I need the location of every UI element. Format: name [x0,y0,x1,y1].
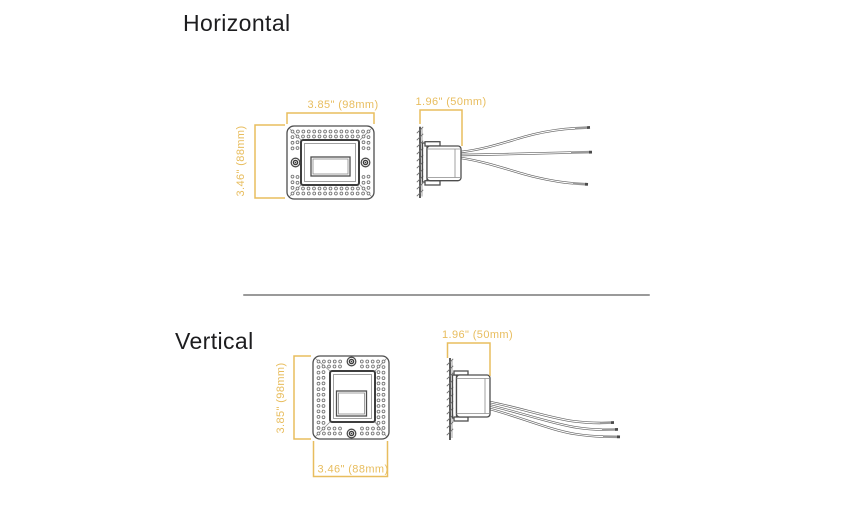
flange-hole [317,360,320,363]
flange-hole [328,365,331,368]
flange-hole [345,192,348,195]
flange-hole [324,130,327,133]
vf-plate [313,356,389,439]
flange-hole [324,135,327,138]
flange-hole [371,432,374,435]
vs-depth-dimension: 1.96" (50mm) [442,329,513,376]
hs-fixture-body [417,127,461,198]
flange-hole [367,175,370,178]
flange-hole [324,192,327,195]
flange-hole [302,135,305,138]
flange-hole [324,187,327,190]
flange-hole [323,432,326,435]
vf-height-label: 3.85" (98mm) [275,362,287,433]
horizontal-front-view: 3.85" (98mm) 3.46" (88mm) [235,92,400,210]
vf-width-dimension: 3.46" (88mm) [314,441,389,477]
flange-hole [335,135,338,138]
hs-depth-label: 1.96" (50mm) [415,96,486,108]
flange-hole [307,187,310,190]
flange-hole [322,421,325,424]
flange-hole [377,421,380,424]
flange-hole [328,360,331,363]
vertical-front-view: 3.85" (98mm) 3.46" (88mm) [250,345,400,480]
flange-hole [296,141,299,144]
flange-hole [328,427,331,430]
flange-hole [361,427,364,430]
flange-hole [317,410,320,413]
flange-hole [356,130,359,133]
flange-hole [340,187,343,190]
flange-hole [317,421,320,424]
flange-hole [377,405,380,408]
flange-hole [377,432,380,435]
flange-hole [351,135,354,138]
flange-hole [296,187,299,190]
flange-hole [339,365,342,368]
flange-hole [291,141,294,144]
flange-hole [302,192,305,195]
hs-depth-dimension: 1.96" (50mm) [415,96,486,146]
flange-hole [296,135,299,138]
flange-hole [345,130,348,133]
flange-hole [322,427,325,430]
screw-dot [365,162,367,164]
flange-hole [313,130,316,133]
flange-hole [367,136,370,139]
flange-hole [333,432,336,435]
flange-hole [351,192,354,195]
flange-hole [377,360,380,363]
flange-hole [313,135,316,138]
wire-stripped-end [575,128,587,129]
flange-hole [322,410,325,413]
flange-hole [335,192,338,195]
flange-hole [322,376,325,379]
vs-wires [490,402,620,437]
flange-hole [323,360,326,363]
flange-hole [382,427,385,430]
flange-hole [346,187,349,190]
flange-hole [339,427,342,430]
flange-hole [317,388,320,391]
flange-hole [377,410,380,413]
flange-hole [291,175,294,178]
flange-hole [382,404,385,407]
flange-hole [377,376,380,379]
hs-wires [461,127,592,184]
flange-hole [329,135,332,138]
flange-hole [335,130,338,133]
horizontal-section-title: Horizontal [183,10,291,37]
flange-hole [340,135,343,138]
hf-height-dimension: 3.46" (88mm) [235,125,285,198]
flange-hole [377,371,380,374]
flange-hole [317,432,320,435]
flange-hole [382,377,385,380]
flange-hole [382,360,385,363]
flange-hole [322,388,325,391]
flange-hole [291,192,294,195]
flange-hole [313,192,316,195]
vf-width-label: 3.46" (88mm) [317,464,388,476]
flange-hole [382,366,385,369]
flange-hole [340,192,343,195]
flange-hole [367,186,370,189]
flange-hole [377,427,380,430]
flange-hole [333,360,336,363]
flange-hole [382,399,385,402]
hf-height-label: 3.46" (88mm) [235,125,247,196]
flange-hole [302,187,305,190]
flange-hole [362,147,365,150]
flange-hole [313,187,316,190]
flange-hole [329,130,332,133]
screw-dot [351,433,353,435]
vs-depth-label: 1.96" (50mm) [442,329,513,341]
flange-hole [367,141,370,144]
flange-hole [351,187,354,190]
flange-hole [377,388,380,391]
flange-hole [317,366,320,369]
flange-hole [322,382,325,385]
flange-hole [296,176,299,179]
flange-hole [362,141,365,144]
vertical-section-title: Vertical [175,328,254,355]
horizontal-side-view: 1.96" (50mm) [403,88,650,210]
flange-hole [356,192,359,195]
flange-hole [362,187,365,190]
flange-hole [322,405,325,408]
flange-hole [362,181,365,184]
flange-hole [291,147,294,150]
flange-hole [377,416,380,419]
flange-hole [297,130,300,133]
flange-hole [351,130,354,133]
vf-height-dimension: 3.85" (98mm) [275,356,311,439]
section-divider [243,294,650,296]
flange-hole [297,192,300,195]
flange-hole [317,415,320,418]
wire [461,128,575,152]
vs-fixture-body [447,358,490,440]
flange-hole [372,427,375,430]
flange-hole [318,187,321,190]
flange-hole [362,192,365,195]
flange-hole [333,427,336,430]
flange-hole [328,432,331,435]
flange-hole [362,135,365,138]
dimension-line [255,125,285,198]
flange-hole [339,432,342,435]
flange-hole [382,382,385,385]
flange-hole [307,192,310,195]
flange-hole [357,135,360,138]
flange-hole [371,360,374,363]
flange-hole [317,382,320,385]
flange-hole [322,393,325,396]
dimension-line [287,113,374,124]
flange-hole [360,360,363,363]
flange-hole [382,432,385,435]
flange-hole [366,432,369,435]
flange-hole [322,365,325,368]
flange-hole [377,365,380,368]
hf-width-dimension: 3.85" (98mm) [287,99,379,124]
flange-hole [322,416,325,419]
hf-plate [287,126,374,199]
flange-hole [307,135,310,138]
flange-hole [366,360,369,363]
flange-hole [296,181,299,184]
flange-hole [377,382,380,385]
flange-hole [377,399,380,402]
flange-hole [361,365,364,368]
screw-dot [295,162,297,164]
flange-hole [317,399,320,402]
flange-hole [366,365,369,368]
flange-hole [367,130,370,133]
flange-hole [318,135,321,138]
flange-hole [291,130,294,133]
flange-hole [366,427,369,430]
flange-hole [367,181,370,184]
flange-hole [307,130,310,133]
flange-hole [382,388,385,391]
flange-hole [340,130,343,133]
flange-hole [339,360,342,363]
flange-hole [382,410,385,413]
step-light-spec-sheet: Horizontal Vertical [0,0,845,511]
dimension-line [294,356,311,439]
flange-hole [329,187,332,190]
flange-hole [335,187,338,190]
flange-hole [360,432,363,435]
flange-hole [367,192,370,195]
flange-hole [372,365,375,368]
flange-hole [382,421,385,424]
flange-hole [329,192,332,195]
vertical-side-view: 1.96" (50mm) [435,322,650,447]
flange-hole [291,186,294,189]
flange-hole [362,176,365,179]
flange-hole [317,427,320,430]
flange-hole [291,181,294,184]
flange-hole [317,404,320,407]
flange-hole [296,147,299,150]
screw-dot [351,361,353,363]
hf-width-label: 3.85" (98mm) [307,99,378,111]
flange-hole [322,399,325,402]
flange-hole [318,192,321,195]
flange-hole [302,130,305,133]
flange-hole [357,187,360,190]
flange-hole [322,371,325,374]
flange-hole [291,136,294,139]
hs-housing [427,146,461,181]
wire-stripped-end [573,183,585,184]
flange-hole [377,393,380,396]
flange-hole [382,393,385,396]
flange-hole [382,371,385,374]
flange-hole [317,393,320,396]
flange-hole [362,130,365,133]
flange-hole [367,147,370,150]
flange-hole [317,377,320,380]
flange-hole [346,135,349,138]
flange-hole [318,130,321,133]
flange-hole [317,371,320,374]
wire-core [461,158,573,183]
flange-hole [333,365,336,368]
dimension-line [420,110,462,146]
flange-hole [382,415,385,418]
